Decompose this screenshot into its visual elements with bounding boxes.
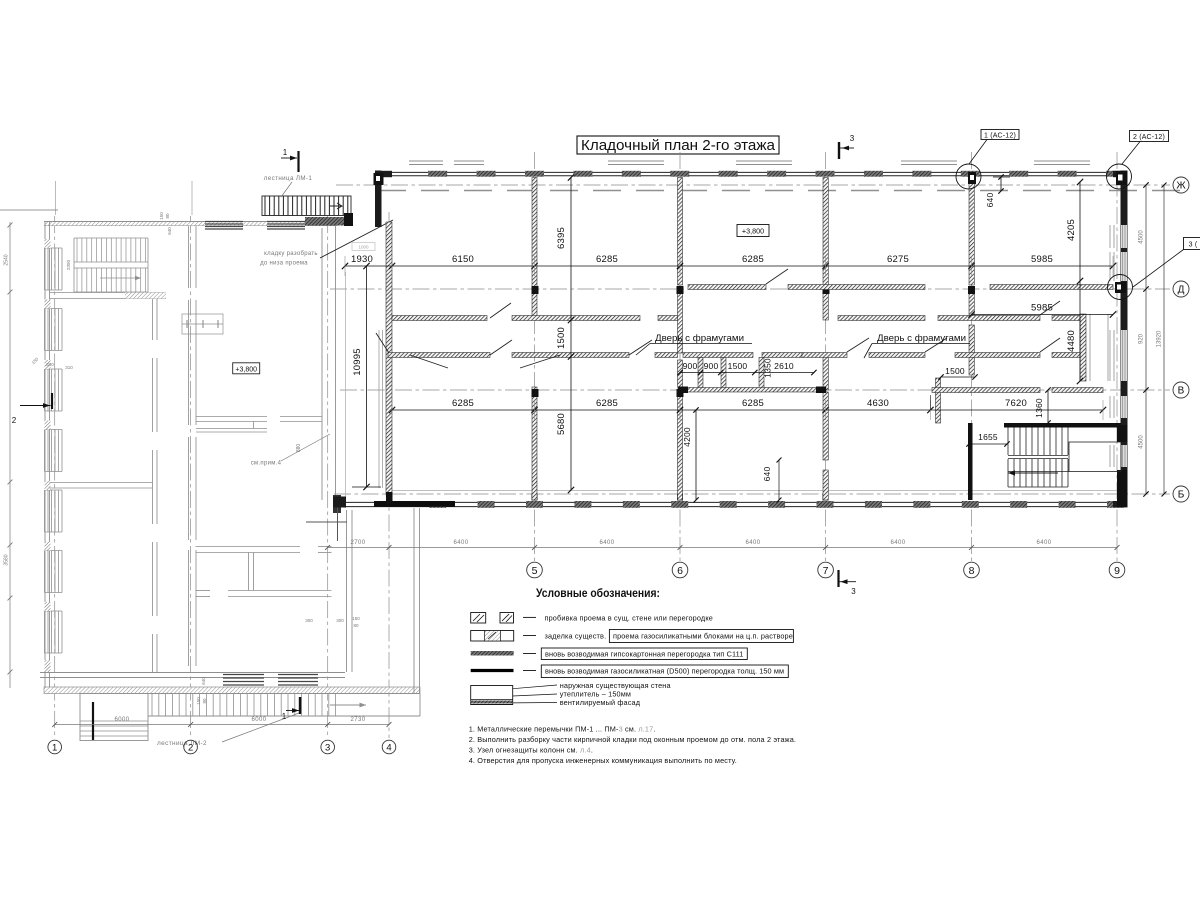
svg-text:лестница ЛМ-2: лестница ЛМ-2 — [157, 740, 207, 747]
svg-text:6400: 6400 — [454, 540, 469, 546]
svg-text:Б: Б — [1178, 490, 1185, 501]
svg-text:6285: 6285 — [596, 398, 618, 409]
svg-text:880: 880 — [296, 444, 302, 453]
svg-text:4200: 4200 — [682, 427, 692, 447]
svg-text:6000: 6000 — [252, 717, 267, 723]
svg-text:6285: 6285 — [452, 398, 474, 409]
svg-text:см.прим.4: см.прим.4 — [251, 461, 282, 467]
svg-text:2: 2 — [188, 742, 193, 753]
svg-text:Кладочный план 2-го этажа: Кладочный план 2-го этажа — [581, 138, 776, 154]
svg-text:вновь возводимая гипсокартонна: вновь возводимая гипсокартонная перегоро… — [545, 650, 743, 659]
svg-text:Дверь с фрамугами: Дверь с фрамугами — [655, 333, 744, 343]
svg-text:5985: 5985 — [1031, 254, 1053, 265]
svg-text:1: 1 — [283, 148, 288, 157]
svg-text:900: 900 — [683, 361, 698, 371]
svg-text:150: 150 — [196, 697, 201, 705]
svg-text:4630: 4630 — [867, 398, 889, 409]
svg-text:9: 9 — [1114, 565, 1120, 577]
svg-text:10995: 10995 — [352, 348, 363, 375]
svg-text:2610: 2610 — [774, 361, 794, 371]
svg-text:80: 80 — [353, 623, 359, 628]
svg-text:640: 640 — [985, 193, 995, 208]
svg-text:150: 150 — [352, 616, 360, 621]
svg-text:вновь возводимая газосиликатна: вновь возводимая газосиликатная (D500) п… — [545, 667, 784, 676]
svg-text:2 (АС-12): 2 (АС-12) — [1133, 134, 1165, 141]
svg-text:В: В — [1178, 386, 1185, 397]
svg-text:заделка существ.: заделка существ. — [545, 632, 607, 641]
svg-text:6150: 6150 — [452, 254, 474, 265]
svg-text:1500: 1500 — [945, 366, 965, 376]
svg-text:900: 900 — [704, 361, 719, 371]
svg-text:7620: 7620 — [1005, 398, 1027, 409]
svg-text:5985: 5985 — [1031, 303, 1053, 314]
svg-text:4480: 4480 — [1066, 330, 1077, 352]
svg-text:3: 3 — [850, 134, 855, 143]
svg-text:4500: 4500 — [1139, 435, 1145, 449]
svg-text:6395: 6395 — [556, 227, 567, 249]
svg-text:640: 640 — [201, 677, 206, 685]
svg-text:1655: 1655 — [978, 432, 998, 442]
svg-text:640: 640 — [762, 467, 772, 482]
svg-text:4205: 4205 — [1066, 219, 1077, 241]
svg-text:4: 4 — [386, 742, 391, 753]
svg-text:1 (АС-12): 1 (АС-12) — [984, 133, 1016, 140]
svg-text:13920: 13920 — [1157, 330, 1163, 347]
svg-text:6285: 6285 — [742, 254, 764, 265]
svg-text:6400: 6400 — [600, 540, 615, 546]
svg-text:6: 6 — [677, 565, 683, 577]
svg-text:2700: 2700 — [351, 540, 366, 546]
svg-text:3. Узел огнезащиты колонн см.: 3. Узел огнезащиты колонн см. л.4. — [469, 746, 593, 755]
svg-text:3580: 3580 — [4, 554, 10, 565]
svg-text:2350: 2350 — [66, 259, 71, 270]
svg-text:лестница ЛМ-1: лестница ЛМ-1 — [264, 175, 313, 182]
svg-text:Дверь с фрамугами: Дверь с фрамугами — [877, 333, 966, 343]
svg-text:300: 300 — [305, 618, 313, 623]
svg-text:3 (: 3 ( — [1189, 242, 1198, 249]
svg-text:1000: 1000 — [358, 245, 369, 250]
svg-text:2730: 2730 — [351, 717, 366, 723]
svg-text:5680: 5680 — [556, 413, 567, 435]
svg-text:7: 7 — [823, 565, 829, 577]
svg-text:6275: 6275 — [887, 254, 909, 265]
svg-text:920: 920 — [1139, 333, 1145, 344]
svg-text:кладку разобрать: кладку разобрать — [264, 251, 318, 257]
svg-text:1500: 1500 — [556, 327, 567, 349]
svg-text:6000: 6000 — [115, 717, 130, 723]
svg-text:проема газосиликатными блоками: проема газосиликатными блоками на ц.п. р… — [613, 632, 793, 641]
svg-text:1350: 1350 — [763, 358, 773, 378]
svg-text:4500: 4500 — [1139, 230, 1145, 244]
svg-text:3: 3 — [851, 587, 856, 596]
svg-text:+3,800: +3,800 — [235, 366, 257, 373]
svg-text:до низа проема: до низа проема — [260, 261, 308, 267]
svg-text:1500: 1500 — [728, 361, 748, 371]
svg-text:80: 80 — [165, 213, 170, 219]
svg-text:Д: Д — [1178, 285, 1185, 296]
svg-text:640: 640 — [167, 227, 172, 235]
svg-text:6400: 6400 — [891, 540, 906, 546]
svg-text:Ж: Ж — [1176, 181, 1186, 192]
svg-text:+3,800: +3,800 — [742, 227, 764, 236]
svg-text:5: 5 — [532, 565, 538, 577]
svg-text:150: 150 — [159, 212, 164, 220]
svg-text:пробивка проема в сущ. стене: пробивка проема в сущ. стене или перегор… — [545, 614, 713, 623]
svg-text:6400: 6400 — [1037, 540, 1052, 546]
svg-text:Условные обозначения:: Условные обозначения: — [536, 588, 660, 600]
svg-text:1: 1 — [282, 712, 287, 721]
svg-text:1: 1 — [52, 742, 57, 753]
svg-text:вентилируемый фасад: вентилируемый фасад — [560, 698, 641, 707]
svg-text:6285: 6285 — [742, 398, 764, 409]
svg-text:330: 330 — [46, 362, 54, 367]
svg-text:2. Выполнить разборку части ки: 2. Выполнить разборку части кирпичной кл… — [469, 735, 796, 744]
svg-text:4. Отверстия для пропуска инже: 4. Отверстия для пропуска инженерных ком… — [469, 756, 737, 765]
svg-text:3: 3 — [325, 742, 330, 753]
svg-text:8: 8 — [969, 565, 975, 577]
svg-text:2: 2 — [12, 416, 17, 425]
svg-text:1. Металлические перемычки П: 1. Металлические перемычки ПМ-1 ... ПМ-3… — [469, 725, 656, 734]
svg-text:2540: 2540 — [4, 254, 10, 265]
svg-text:310: 310 — [65, 365, 73, 370]
svg-text:80: 80 — [202, 698, 207, 704]
svg-text:300: 300 — [336, 618, 344, 623]
svg-text:1360: 1360 — [1034, 398, 1044, 418]
svg-text:6400: 6400 — [746, 540, 761, 546]
svg-text:6285: 6285 — [596, 254, 618, 265]
